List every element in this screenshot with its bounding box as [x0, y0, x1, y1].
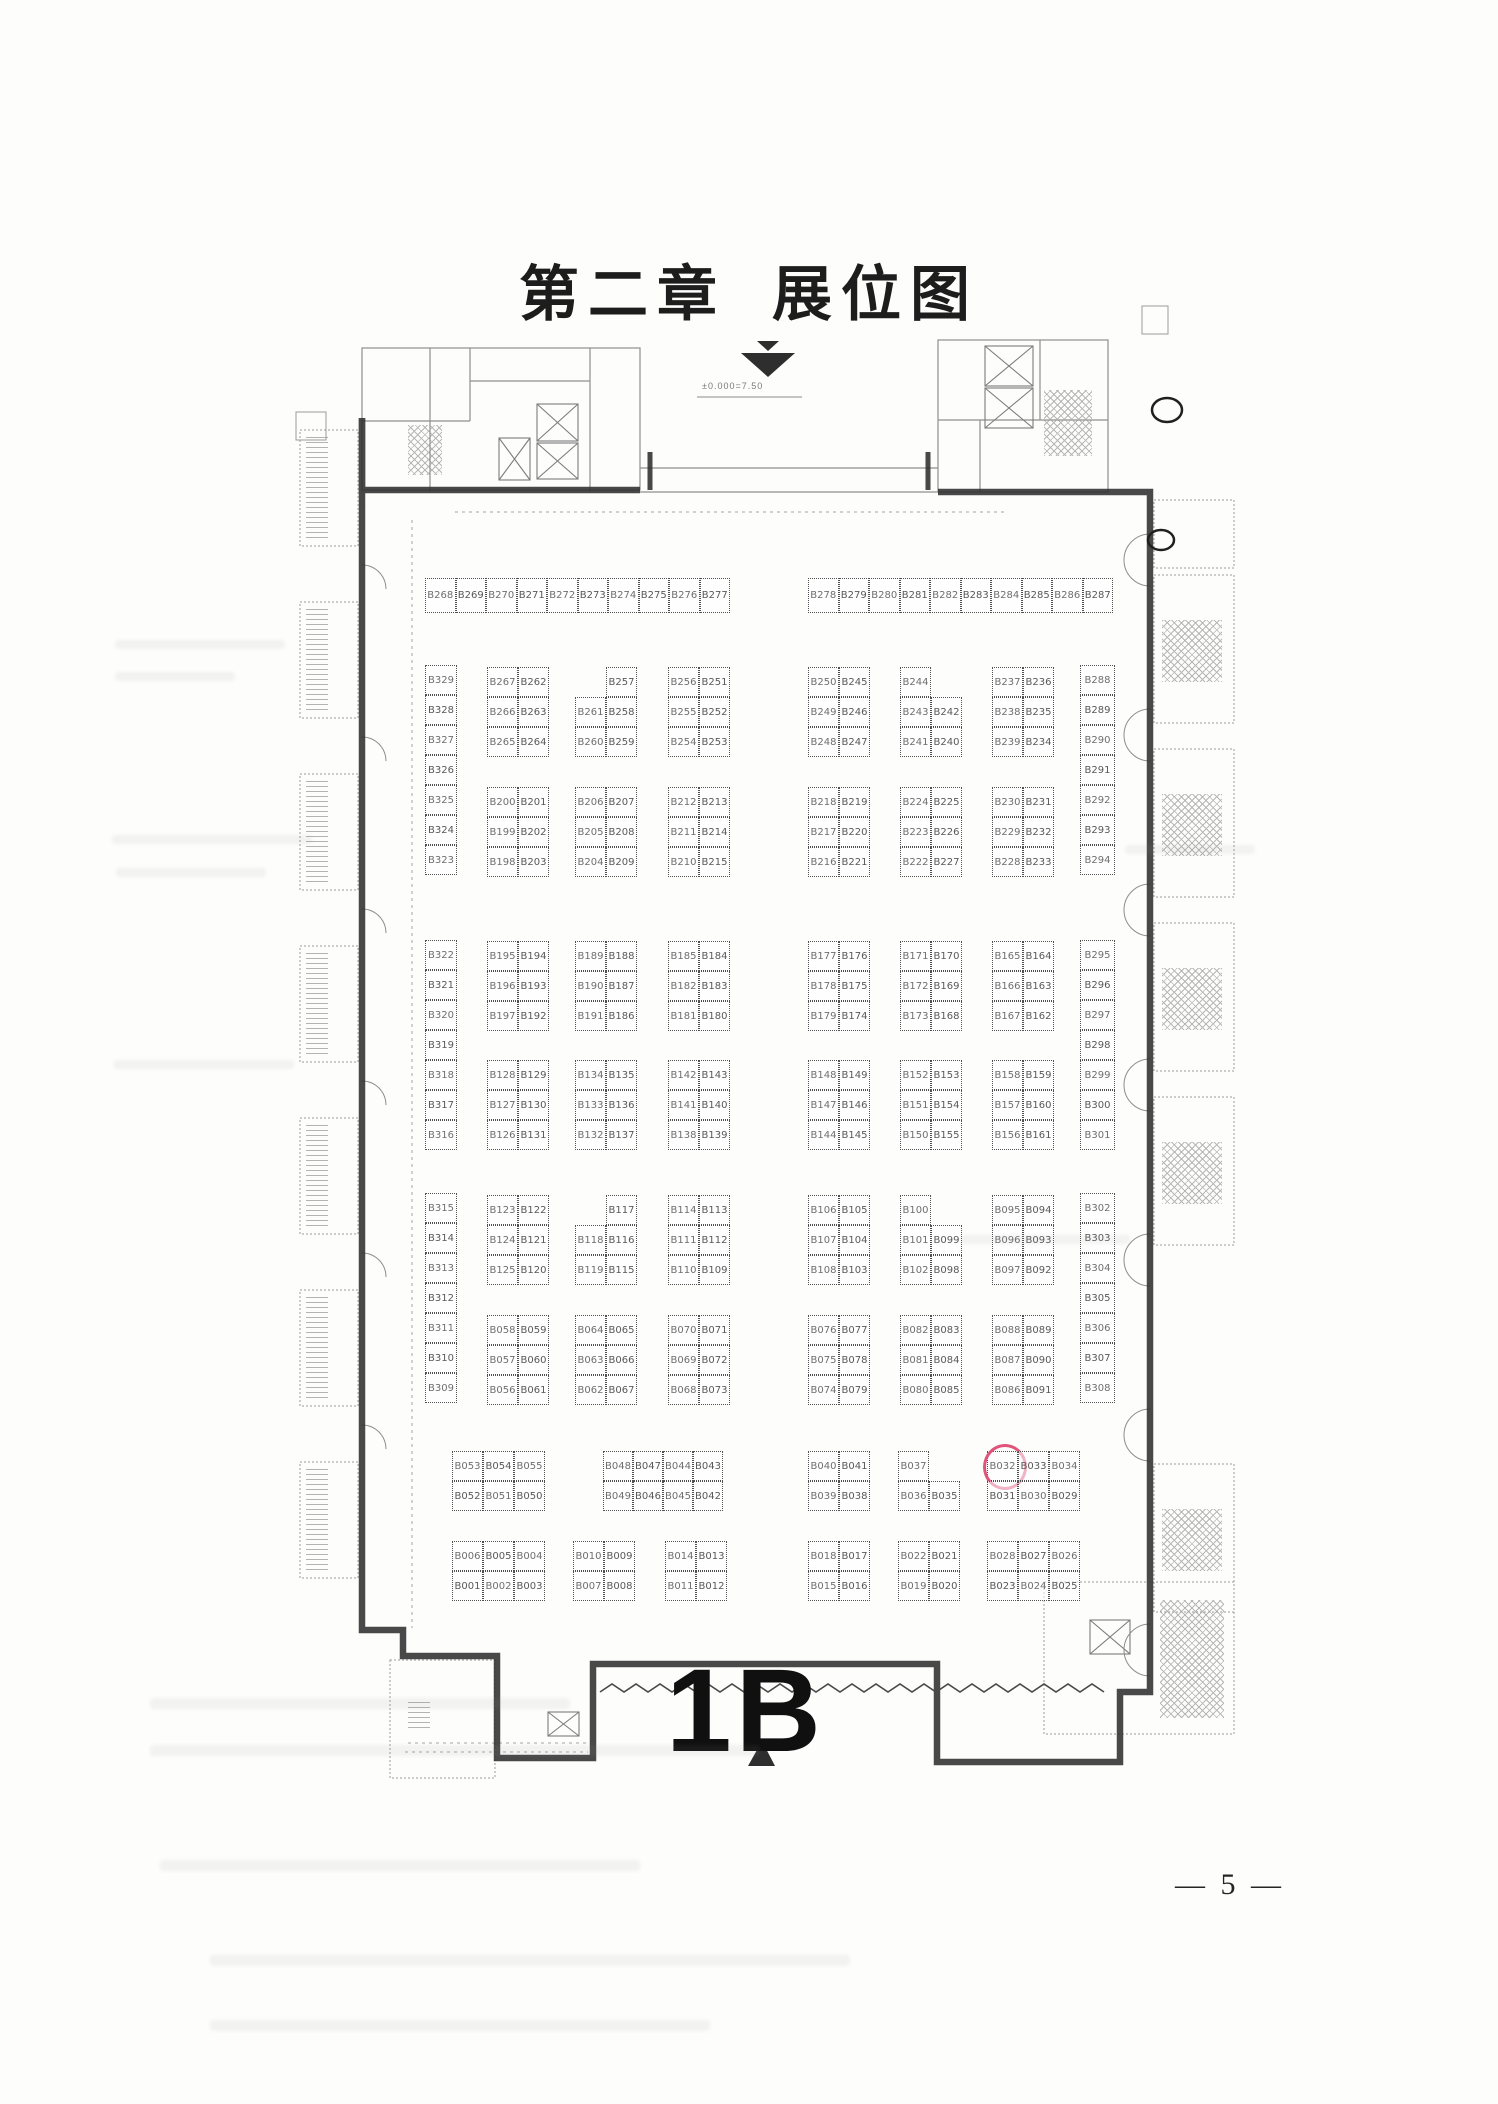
booth-cell: B102	[900, 1255, 931, 1285]
booth-cell: B255	[668, 697, 699, 727]
booth-cell: B328	[425, 695, 457, 725]
booth-cell: B082	[900, 1315, 931, 1345]
booth-cell: B080	[900, 1375, 931, 1405]
booth-cell: B036	[898, 1481, 929, 1511]
booth-block: B148B149B147B146B144B145	[808, 1060, 870, 1150]
booth-cell: B322	[425, 940, 457, 970]
booth-cell: B262	[518, 667, 549, 697]
booth-block: B032B033B034B031B030B029	[987, 1451, 1080, 1511]
booth-cell: B106	[808, 1195, 839, 1225]
booth-cell: B033	[1018, 1451, 1049, 1481]
booth-cell: B268	[425, 578, 456, 613]
booth-cell: B100	[900, 1195, 931, 1225]
booth-cell: B054	[483, 1451, 514, 1481]
booth-cell: B052	[452, 1481, 483, 1511]
booth-block: B206B207B205B208B204B209	[575, 787, 637, 877]
booth-cell: B258	[606, 697, 637, 727]
booth-cell: B248	[808, 727, 839, 757]
booth-cell: B250	[808, 667, 839, 697]
booth-cell: B178	[808, 971, 839, 1001]
booth-cell: B161	[1023, 1120, 1054, 1150]
booth-cell: B123	[487, 1195, 518, 1225]
booth-block: B106B105B107B104B108B103	[808, 1195, 870, 1285]
booth-cell: B173	[900, 1001, 931, 1031]
booth-cell: B103	[839, 1255, 870, 1285]
booth-cell: B286	[1052, 578, 1083, 613]
booth-cell: B129	[518, 1060, 549, 1090]
booth-block: B256B251B255B252B254B253	[668, 667, 730, 757]
booth-block: B315B314B313B312B311B310B309	[425, 1193, 457, 1403]
booth-cell: B236	[1023, 667, 1054, 697]
booth-cell: B112	[699, 1225, 730, 1255]
booth-cell-empty	[931, 667, 962, 697]
booth-cell: B256	[668, 667, 699, 697]
booth-cell: B307	[1080, 1343, 1115, 1373]
booth-cell: B061	[518, 1375, 549, 1405]
booth-cell: B230	[992, 787, 1023, 817]
booth-cell: B133	[575, 1090, 606, 1120]
booth-cell: B215	[699, 847, 730, 877]
booth-cell: B084	[931, 1345, 962, 1375]
booth-cell: B329	[425, 665, 457, 695]
booth-cell: B127	[487, 1090, 518, 1120]
booth-cell: B164	[1023, 941, 1054, 971]
booth-cell: B304	[1080, 1253, 1115, 1283]
booth-cell: B142	[668, 1060, 699, 1090]
booth-cell: B155	[931, 1120, 962, 1150]
booth-cell: B143	[699, 1060, 730, 1090]
booth-block: B114B113B111B112B110B109	[668, 1195, 730, 1285]
booth-cell: B192	[518, 1001, 549, 1031]
booth-cell: B016	[839, 1571, 870, 1601]
booth-cell: B232	[1023, 817, 1054, 847]
booth-cell: B094	[1023, 1195, 1054, 1225]
booth-block: B230B231B229B232B228B233	[992, 787, 1054, 877]
booth-cell: B294	[1080, 845, 1115, 875]
booth-cell: B306	[1080, 1313, 1115, 1343]
booth-cell: B012	[696, 1571, 727, 1601]
booth-cell: B275	[639, 578, 670, 613]
booth-block: B018B017B015B016	[808, 1541, 870, 1601]
booth-cell: B128	[487, 1060, 518, 1090]
bleed-artifact	[160, 1860, 640, 1871]
booth-cell: B138	[668, 1120, 699, 1150]
booth-cell: B051	[483, 1481, 514, 1511]
booth-cell: B071	[699, 1315, 730, 1345]
booth-cell: B222	[900, 847, 931, 877]
booth-cell: B174	[839, 1001, 870, 1031]
booth-cell: B070	[668, 1315, 699, 1345]
booth-cell: B245	[839, 667, 870, 697]
booth-cell-empty	[931, 1195, 962, 1225]
booth-cell: B175	[839, 971, 870, 1001]
booth-cell: B277	[700, 578, 731, 613]
booth-cell: B147	[808, 1090, 839, 1120]
booth-cell: B151	[900, 1090, 931, 1120]
booth-cell: B196	[487, 971, 518, 1001]
booth-cell: B263	[518, 697, 549, 727]
booth-cell: B019	[898, 1571, 929, 1601]
booth-block: B142B143B141B140B138B139	[668, 1060, 730, 1150]
booth-cell: B225	[931, 787, 962, 817]
page-number: — 5 —	[1175, 1868, 1285, 1902]
booth-cell: B087	[992, 1345, 1023, 1375]
booth-cell: B150	[900, 1120, 931, 1150]
booth-cell: B050	[514, 1481, 545, 1511]
booth-block: B128B129B127B130B126B131	[487, 1060, 549, 1150]
booth-cell: B224	[900, 787, 931, 817]
booth-cell: B312	[425, 1283, 457, 1313]
booth-cell: B288	[1080, 665, 1115, 695]
booth-cell: B199	[487, 817, 518, 847]
floor-plan: B268B269B270B271B272B273B274B275B276B277…	[0, 0, 1498, 2104]
booth-cell: B110	[668, 1255, 699, 1285]
booth-cell: B195	[487, 941, 518, 971]
booth-cell: B212	[668, 787, 699, 817]
booth-cell: B144	[808, 1120, 839, 1150]
booth-cell: B003	[514, 1571, 545, 1601]
booth-cell: B233	[1023, 847, 1054, 877]
booth-cell: B313	[425, 1253, 457, 1283]
booth-cell: B221	[839, 847, 870, 877]
booth-block: B070B071B069B072B068B073	[668, 1315, 730, 1405]
booth-cell: B024	[1018, 1571, 1049, 1601]
booth-cell: B269	[456, 578, 487, 613]
booth-cell: B039	[808, 1481, 839, 1511]
bleed-artifact	[150, 1745, 760, 1756]
booth-cell: B073	[699, 1375, 730, 1405]
booth-block: B278B279B280B281B282B283B284B285B286B287	[808, 578, 1113, 613]
booth-cell: B131	[518, 1120, 549, 1150]
booth-cell: B108	[808, 1255, 839, 1285]
booth-cell: B113	[699, 1195, 730, 1225]
booth-cell: B076	[808, 1315, 839, 1345]
booth-cell: B023	[987, 1571, 1018, 1601]
booth-cell: B160	[1023, 1090, 1054, 1120]
booth-block: B165B164B166B163B167B162	[992, 941, 1054, 1031]
elevation-note: ±0.000=7.50	[702, 381, 763, 391]
booth-cell: B282	[930, 578, 961, 613]
booth-cell: B260	[575, 727, 606, 757]
booth-block: B037B036B035	[898, 1451, 960, 1511]
booth-block: B224B225B223B226B222B227	[900, 787, 962, 877]
bleed-artifact	[150, 1698, 570, 1709]
booth-block: B218B219B217B220B216B221	[808, 787, 870, 877]
booth-cell: B069	[668, 1345, 699, 1375]
booth-cell: B059	[518, 1315, 549, 1345]
booth-cell: B208	[606, 817, 637, 847]
booth-cell: B300	[1080, 1090, 1115, 1120]
booth-block: B267B262B266B263B265B264	[487, 667, 549, 757]
booth-cell: B290	[1080, 725, 1115, 755]
booth-cell: B057	[487, 1345, 518, 1375]
booth-cell: B169	[931, 971, 962, 1001]
booth-cell: B265	[487, 727, 518, 757]
booth-cell: B229	[992, 817, 1023, 847]
booth-block: B257B261B258B260B259	[575, 667, 637, 757]
booth-block: B250B245B249B246B248B247	[808, 667, 870, 757]
booth-cell: B068	[668, 1375, 699, 1405]
bleed-artifact	[210, 2020, 710, 2031]
booth-cell: B049	[603, 1481, 633, 1511]
booth-block: B022B021B019B020	[898, 1541, 960, 1601]
bleed-artifact	[115, 640, 285, 649]
booth-cell: B298	[1080, 1030, 1115, 1060]
booth-cell: B086	[992, 1375, 1023, 1405]
booth-cell: B042	[693, 1481, 723, 1511]
booth-cell: B235	[1023, 697, 1054, 727]
booth-cell: B302	[1080, 1193, 1115, 1223]
booth-cell: B289	[1080, 695, 1115, 725]
booth-cell: B311	[425, 1313, 457, 1343]
booth-cell: B141	[668, 1090, 699, 1120]
booth-block: B185B184B182B183B181B180	[668, 941, 730, 1031]
booth-cell: B323	[425, 845, 457, 875]
booth-cell: B095	[992, 1195, 1023, 1225]
booth-cell: B058	[487, 1315, 518, 1345]
booth-cell: B234	[1023, 727, 1054, 757]
booth-cell: B101	[900, 1225, 931, 1255]
booth-cell: B231	[1023, 787, 1054, 817]
booth-cell: B114	[668, 1195, 699, 1225]
booth-cell: B210	[668, 847, 699, 877]
booth-cell: B204	[575, 847, 606, 877]
booth-cell: B220	[839, 817, 870, 847]
booth-cell: B040	[808, 1451, 839, 1481]
booth-cell: B157	[992, 1090, 1023, 1120]
booth-layer: B268B269B270B271B272B273B274B275B276B277…	[0, 0, 1498, 2104]
booth-cell: B031	[987, 1481, 1018, 1511]
booth-cell: B226	[931, 817, 962, 847]
booth-cell: B028	[987, 1541, 1018, 1571]
booth-cell: B111	[668, 1225, 699, 1255]
booth-cell: B081	[900, 1345, 931, 1375]
booth-cell: B053	[452, 1451, 483, 1481]
booth-cell: B083	[931, 1315, 962, 1345]
booth-cell: B317	[425, 1090, 457, 1120]
booth-cell: B043	[693, 1451, 723, 1481]
booth-cell: B132	[575, 1120, 606, 1150]
booth-cell: B124	[487, 1225, 518, 1255]
booth-cell: B001	[452, 1571, 483, 1601]
booth-cell: B056	[487, 1375, 518, 1405]
booth-block: B268B269B270B271B272B273B274B275B276B277	[425, 578, 730, 613]
booth-cell: B324	[425, 815, 457, 845]
booth-cell: B261	[575, 697, 606, 727]
booth-block: B082B083B081B084B080B085	[900, 1315, 962, 1405]
booth-cell: B266	[487, 697, 518, 727]
booth-cell: B211	[668, 817, 699, 847]
booth-cell: B316	[425, 1120, 457, 1150]
booth-cell: B246	[839, 697, 870, 727]
bleed-artifact	[1125, 845, 1255, 854]
booth-cell: B183	[699, 971, 730, 1001]
document-page: 第二章展位图	[0, 0, 1498, 2104]
booth-cell: B297	[1080, 1000, 1115, 1030]
bleed-artifact	[112, 835, 312, 844]
booth-block: B053B054B055B052B051B050	[452, 1451, 545, 1511]
booth-cell: B193	[518, 971, 549, 1001]
booth-cell: B078	[839, 1345, 870, 1375]
booth-block: B302B303B304B305B306B307B308	[1080, 1193, 1115, 1403]
booth-cell: B021	[929, 1541, 960, 1571]
booth-cell: B092	[1023, 1255, 1054, 1285]
booth-cell: B285	[1022, 578, 1053, 613]
booth-cell: B091	[1023, 1375, 1054, 1405]
booth-cell: B026	[1049, 1541, 1080, 1571]
bleed-artifact	[115, 672, 235, 681]
booth-cell: B216	[808, 847, 839, 877]
booth-cell: B239	[992, 727, 1023, 757]
booth-cell: B237	[992, 667, 1023, 697]
booth-block: B040B041B039B038	[808, 1451, 870, 1511]
booth-block: B064B065B063B066B062B067	[575, 1315, 637, 1405]
bleed-artifact	[116, 868, 266, 877]
booth-block: B006B005B004B001B002B003	[452, 1541, 545, 1601]
booth-cell: B135	[606, 1060, 637, 1090]
booth-cell: B035	[929, 1481, 960, 1511]
booth-cell-empty	[575, 667, 606, 697]
booth-block: B295B296B297B298B299B300B301	[1080, 940, 1115, 1150]
booth-cell: B292	[1080, 785, 1115, 815]
booth-cell: B278	[808, 578, 839, 613]
booth-cell: B002	[483, 1571, 514, 1601]
booth-cell: B327	[425, 725, 457, 755]
booth-cell: B197	[487, 1001, 518, 1031]
booth-cell: B191	[575, 1001, 606, 1031]
booth-cell: B041	[839, 1451, 870, 1481]
booth-cell: B228	[992, 847, 1023, 877]
booth-cell: B181	[668, 1001, 699, 1031]
booth-cell: B179	[808, 1001, 839, 1031]
booth-cell: B055	[514, 1451, 545, 1481]
bleed-artifact	[210, 1955, 850, 1966]
booth-cell: B227	[931, 847, 962, 877]
booth-cell: B089	[1023, 1315, 1054, 1345]
booth-block: B329B328B327B326B325B324B323	[425, 665, 457, 875]
booth-cell: B018	[808, 1541, 839, 1571]
booth-cell: B203	[518, 847, 549, 877]
booth-cell: B140	[699, 1090, 730, 1120]
booth-cell: B299	[1080, 1060, 1115, 1090]
booth-cell: B249	[808, 697, 839, 727]
booth-cell: B013	[696, 1541, 727, 1571]
booth-cell: B122	[518, 1195, 549, 1225]
booth-cell: B088	[992, 1315, 1023, 1345]
booth-cell: B115	[606, 1255, 637, 1285]
booth-block: B158B159B157B160B156B161	[992, 1060, 1054, 1150]
booth-cell: B009	[604, 1541, 635, 1571]
booth-cell: B186	[606, 1001, 637, 1031]
booth-cell: B301	[1080, 1120, 1115, 1150]
booth-block: B152B153B151B154B150B155	[900, 1060, 962, 1150]
booth-cell: B319	[425, 1030, 457, 1060]
booth-block: B058B059B057B060B056B061	[487, 1315, 549, 1405]
booth-cell: B253	[699, 727, 730, 757]
booth-cell: B314	[425, 1223, 457, 1253]
booth-block: B244B243B242B241B240	[900, 667, 962, 757]
booth-cell: B075	[808, 1345, 839, 1375]
booth-cell: B296	[1080, 970, 1115, 1000]
booth-cell: B206	[575, 787, 606, 817]
booth-block: B117B118B116B119B115	[575, 1195, 637, 1285]
booth-cell: B326	[425, 755, 457, 785]
booth-block: B237B236B238B235B239B234	[992, 667, 1054, 757]
booth-block: B048B047B044B043B049B046B045B042	[603, 1451, 723, 1511]
booth-cell: B060	[518, 1345, 549, 1375]
booth-cell: B284	[991, 578, 1022, 613]
booth-cell: B219	[839, 787, 870, 817]
booth-cell: B047	[633, 1451, 663, 1481]
booth-cell: B194	[518, 941, 549, 971]
booth-cell: B063	[575, 1345, 606, 1375]
booth-cell: B022	[898, 1541, 929, 1571]
booth-cell: B202	[518, 817, 549, 847]
booth-cell: B170	[931, 941, 962, 971]
booth-block: B014B013B011B012	[665, 1541, 727, 1601]
booth-cell: B188	[606, 941, 637, 971]
booth-cell: B004	[514, 1541, 545, 1571]
booth-block: B076B077B075B078B074B079	[808, 1315, 870, 1405]
booth-cell: B182	[668, 971, 699, 1001]
booth-cell: B187	[606, 971, 637, 1001]
booth-block: B177B176B178B175B179B174	[808, 941, 870, 1031]
booth-block: B189B188B190B187B191B186	[575, 941, 637, 1031]
booth-cell: B130	[518, 1090, 549, 1120]
booth-cell: B045	[663, 1481, 693, 1511]
booth-block: B322B321B320B319B318B317B316	[425, 940, 457, 1150]
booth-cell: B318	[425, 1060, 457, 1090]
booth-cell: B090	[1023, 1345, 1054, 1375]
booth-cell: B010	[573, 1541, 604, 1571]
booth-cell: B098	[931, 1255, 962, 1285]
booth-cell: B184	[699, 941, 730, 971]
booth-cell: B177	[808, 941, 839, 971]
booth-cell: B116	[606, 1225, 637, 1255]
booth-cell: B074	[808, 1375, 839, 1405]
booth-cell: B218	[808, 787, 839, 817]
booth-cell: B325	[425, 785, 457, 815]
booth-cell: B309	[425, 1373, 457, 1403]
booth-cell: B240	[931, 727, 962, 757]
booth-cell: B014	[665, 1541, 696, 1571]
booth-cell: B118	[575, 1225, 606, 1255]
booth-cell: B008	[604, 1571, 635, 1601]
booth-cell: B308	[1080, 1373, 1115, 1403]
booth-cell: B038	[839, 1481, 870, 1511]
booth-cell: B153	[931, 1060, 962, 1090]
booth-block: B088B089B087B090B086B091	[992, 1315, 1054, 1405]
booth-cell: B126	[487, 1120, 518, 1150]
booth-cell: B272	[547, 578, 578, 613]
booth-cell: B162	[1023, 1001, 1054, 1031]
booth-cell: B271	[517, 578, 548, 613]
booth-block: B200B201B199B202B198B203	[487, 787, 549, 877]
booth-cell: B201	[518, 787, 549, 817]
booth-cell: B283	[961, 578, 992, 613]
booth-cell: B099	[931, 1225, 962, 1255]
booth-cell: B247	[839, 727, 870, 757]
booth-cell: B163	[1023, 971, 1054, 1001]
booth-cell: B213	[699, 787, 730, 817]
booth-cell: B015	[808, 1571, 839, 1601]
booth-cell: B281	[900, 578, 931, 613]
booth-cell: B273	[578, 578, 609, 613]
bleed-artifact	[960, 1235, 1130, 1244]
booth-block: B195B194B196B193B197B192	[487, 941, 549, 1031]
booth-cell: B048	[603, 1451, 633, 1481]
booth-cell: B166	[992, 971, 1023, 1001]
